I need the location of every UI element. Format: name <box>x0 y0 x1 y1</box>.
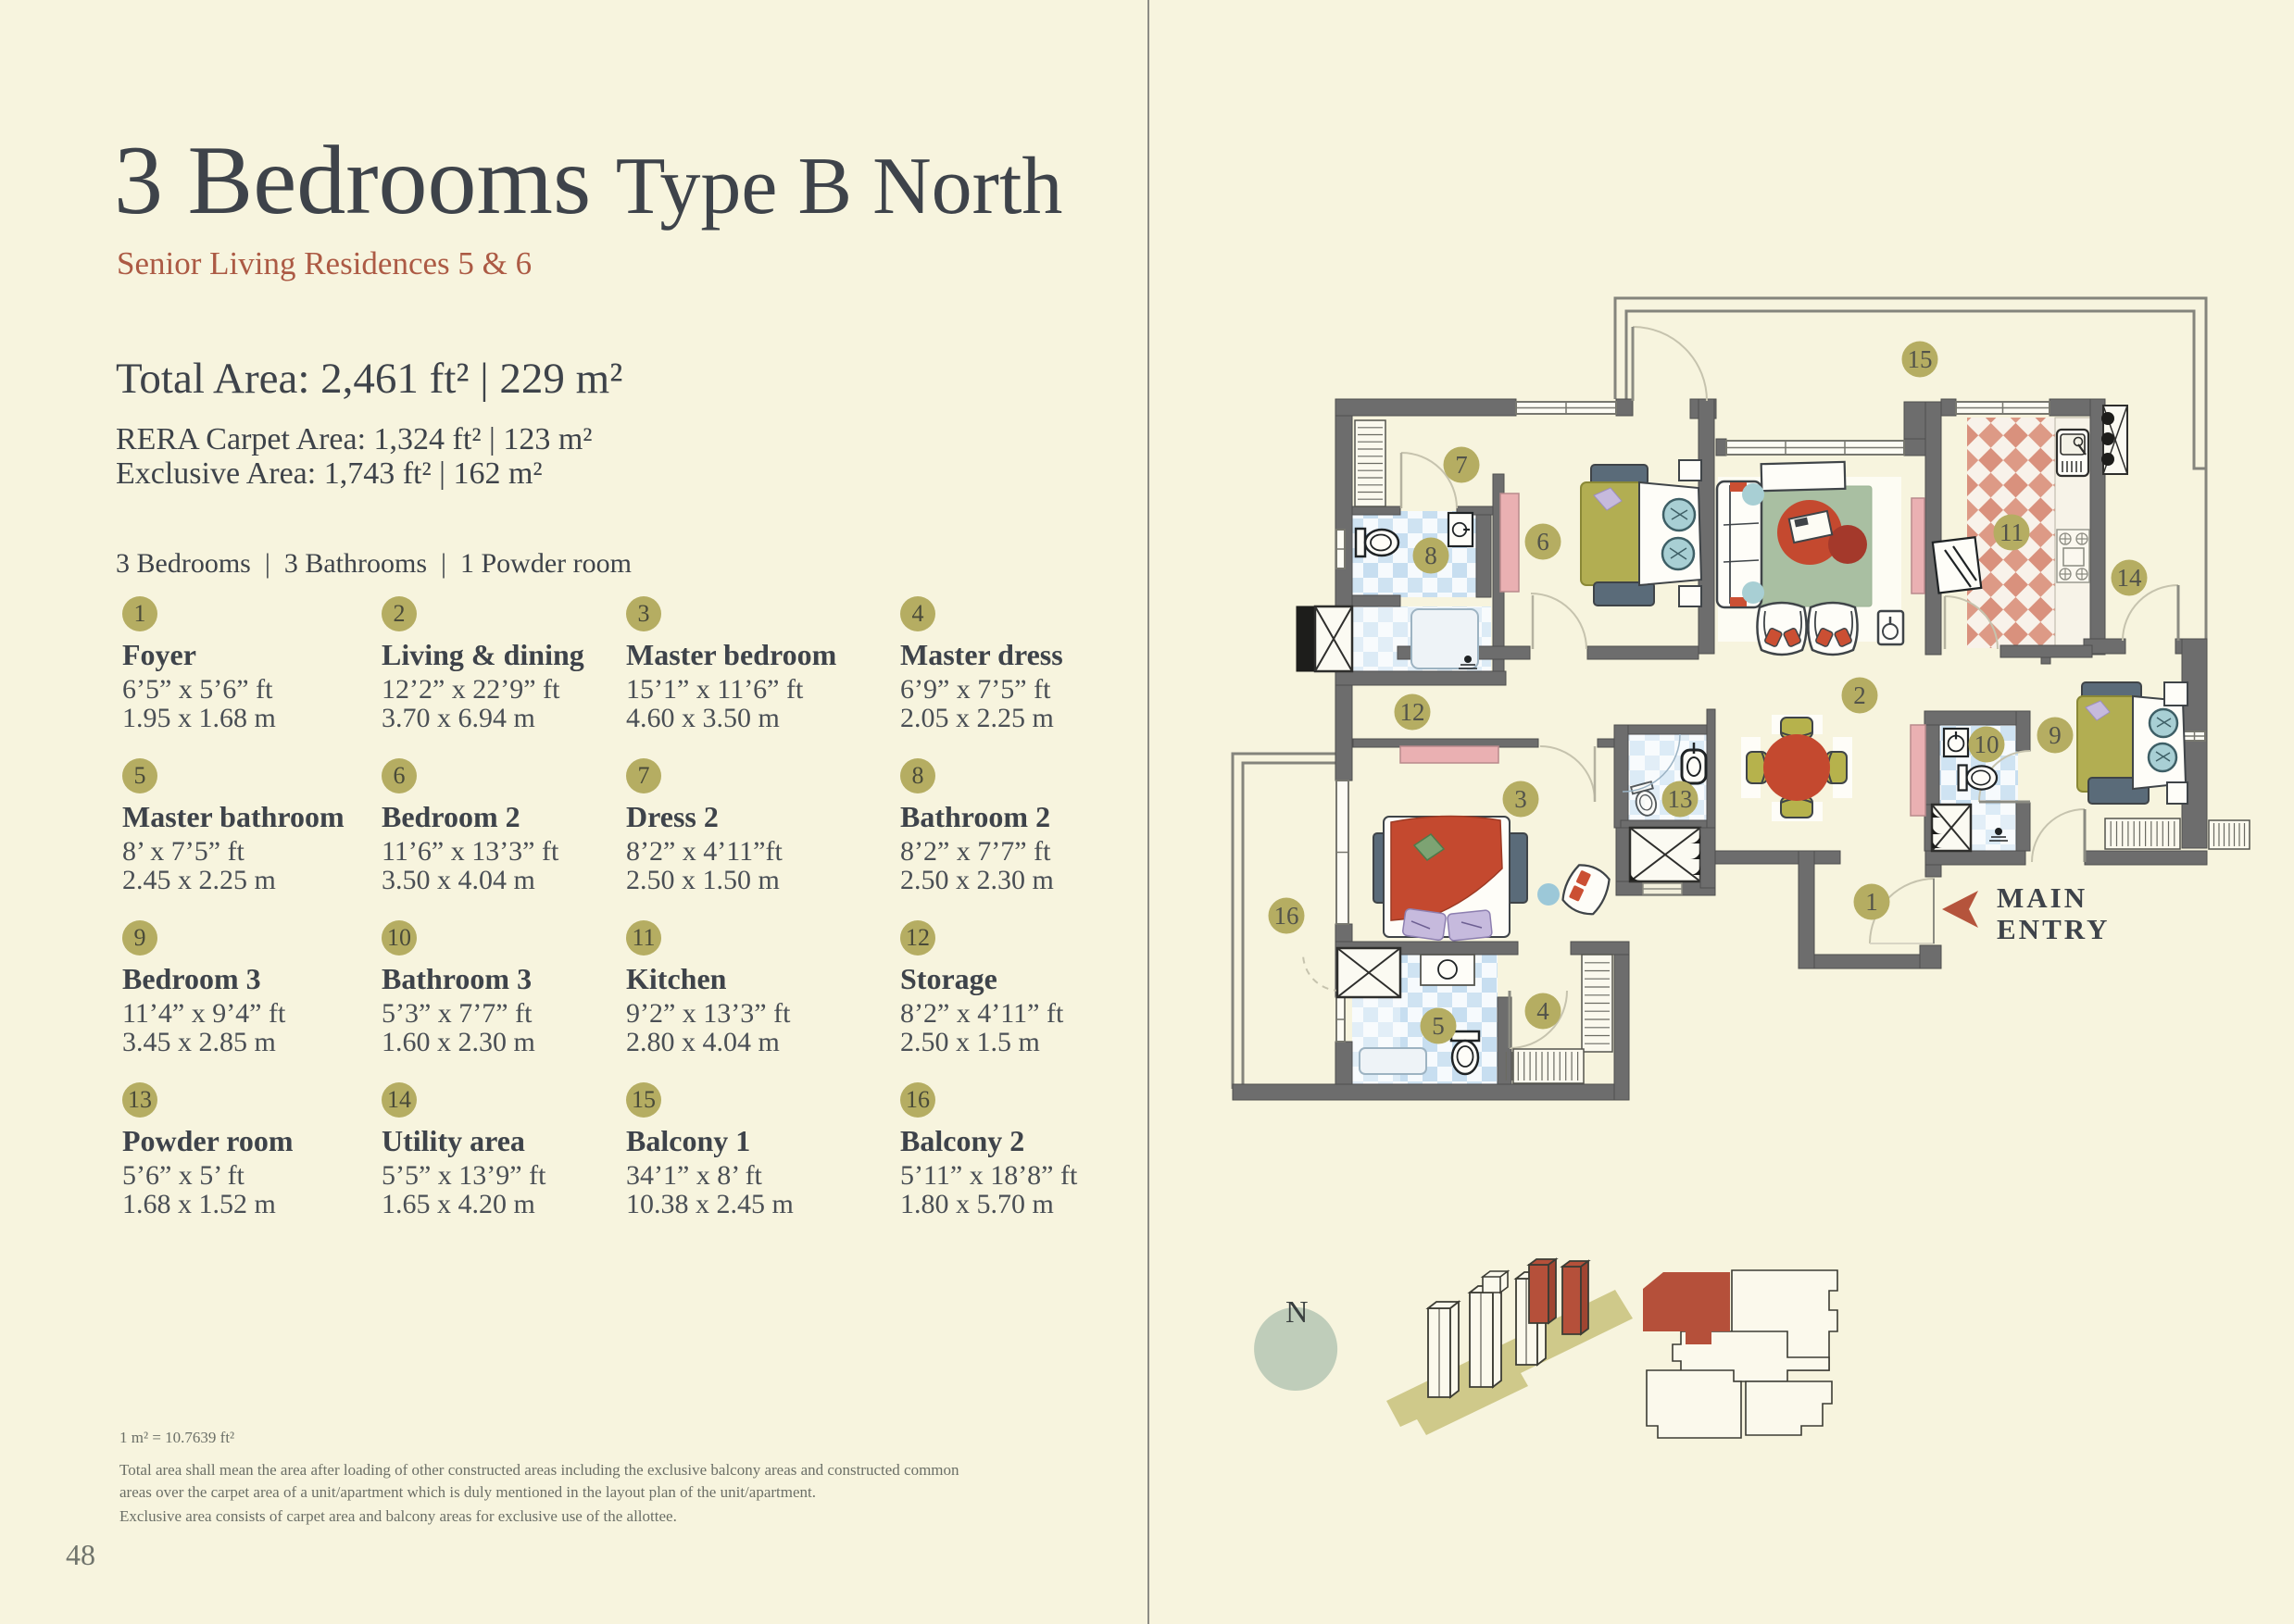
svg-text:14: 14 <box>2117 564 2143 592</box>
svg-text:5: 5 <box>1432 1012 1445 1040</box>
svg-text:3: 3 <box>1514 785 1527 813</box>
svg-text:N: N <box>1285 1295 1309 1330</box>
svg-text:2: 2 <box>1853 681 1866 709</box>
svg-text:11: 11 <box>1999 518 2024 546</box>
svg-text:MAIN: MAIN <box>1997 881 2087 914</box>
svg-text:10: 10 <box>1974 731 1999 758</box>
svg-text:9: 9 <box>2049 721 2062 749</box>
svg-text:6: 6 <box>1536 528 1549 556</box>
svg-text:15: 15 <box>1908 345 1933 373</box>
svg-text:13: 13 <box>1668 785 1693 813</box>
svg-text:ENTRY: ENTRY <box>1997 913 2110 945</box>
svg-text:12: 12 <box>1400 698 1425 726</box>
svg-text:16: 16 <box>1274 902 1299 930</box>
svg-text:4: 4 <box>1536 997 1549 1025</box>
svg-text:7: 7 <box>1455 451 1468 479</box>
svg-text:8: 8 <box>1424 542 1437 569</box>
svg-text:1: 1 <box>1865 888 1878 916</box>
